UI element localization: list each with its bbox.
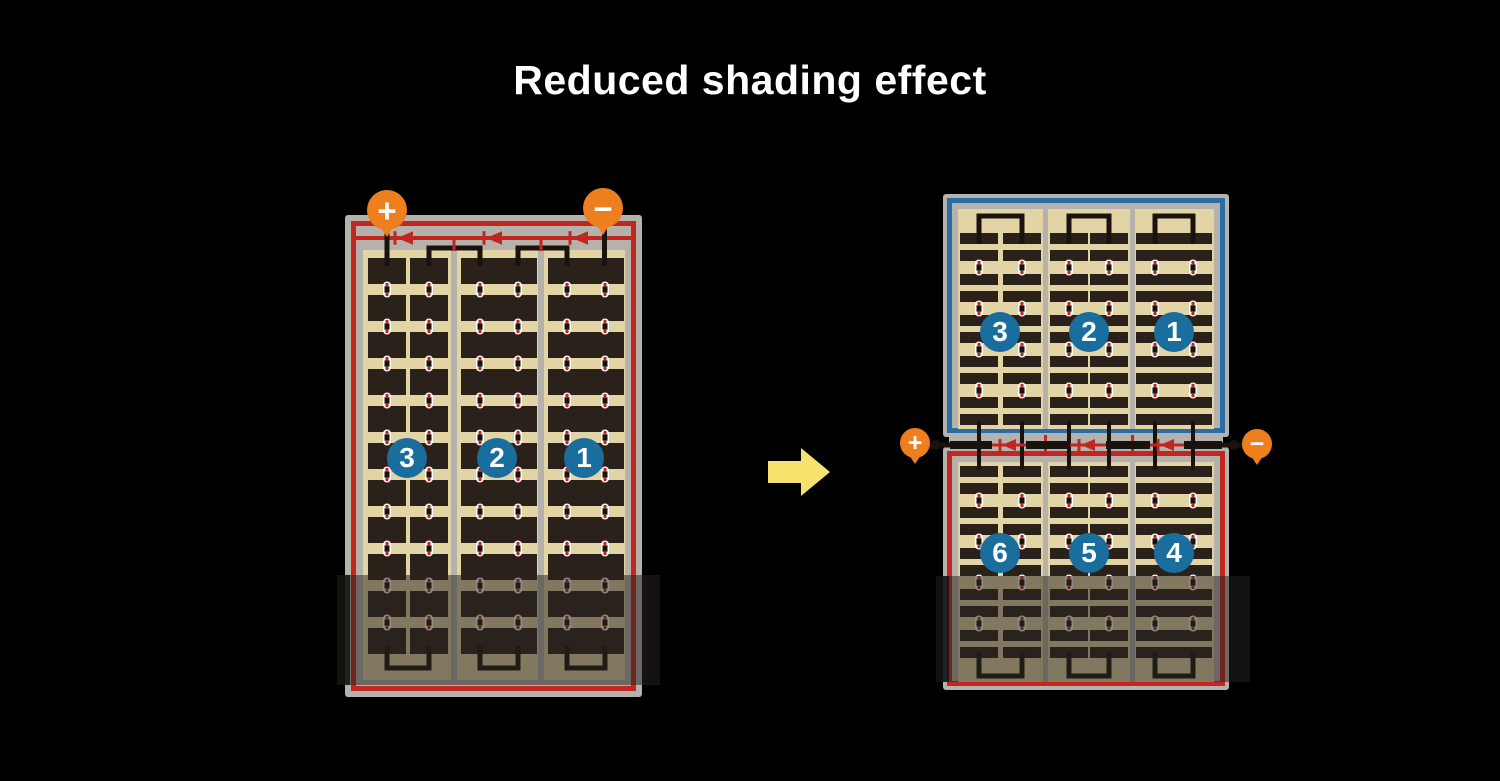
positive-terminal-left: + xyxy=(367,190,407,230)
string-badge-right-bottom-5: 5 xyxy=(1069,533,1109,573)
arrow-icon xyxy=(768,448,830,496)
diagram-title: Reduced shading effect xyxy=(0,57,1500,104)
string-badge-right-top-1: 1 xyxy=(1154,312,1194,352)
diagram-canvas: Reduced shading effect + − 3 2 1 + − 3 2… xyxy=(0,0,1500,781)
diagram-graphics xyxy=(0,0,1500,781)
string-badge-right-top-2: 2 xyxy=(1069,312,1109,352)
string-divider xyxy=(1043,209,1048,429)
negative-terminal-right: − xyxy=(1242,429,1272,459)
left-shading-band xyxy=(337,575,660,685)
string-divider xyxy=(1130,209,1135,429)
string-badge-left-1: 1 xyxy=(564,438,604,478)
positive-terminal-right: + xyxy=(900,428,930,458)
string-badge-right-bottom-4: 4 xyxy=(1154,533,1194,573)
string-badge-right-top-3: 3 xyxy=(980,312,1020,352)
right-shading-band xyxy=(936,576,1250,682)
string-badge-left-2: 2 xyxy=(477,438,517,478)
string-badge-left-3: 3 xyxy=(387,438,427,478)
string-badge-right-bottom-6: 6 xyxy=(980,533,1020,573)
negative-terminal-left: − xyxy=(583,188,623,228)
